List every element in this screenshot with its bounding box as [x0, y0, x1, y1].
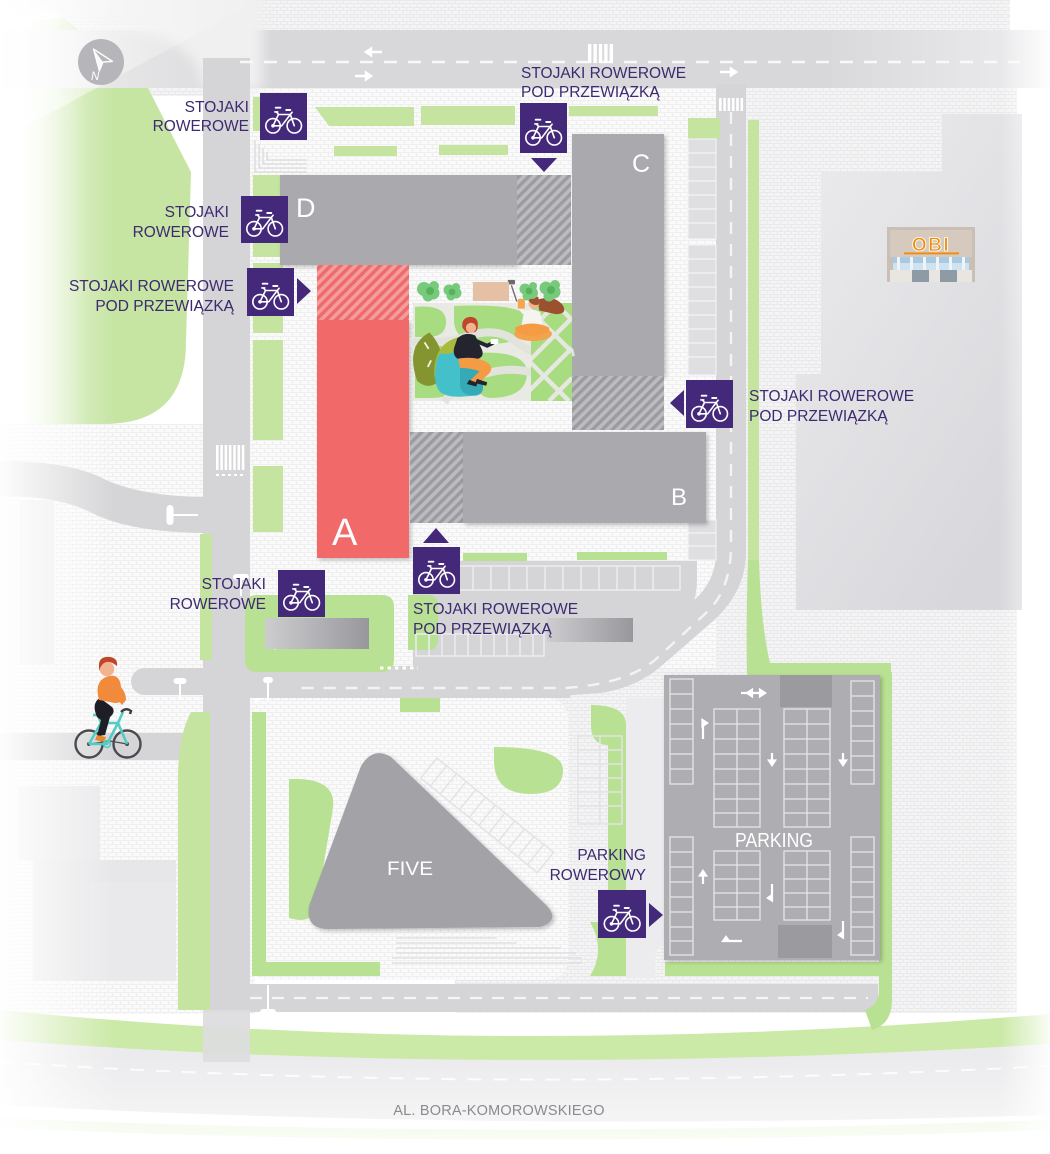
svg-text:STOJAKI ROWEROWE: STOJAKI ROWEROWE — [413, 601, 578, 618]
svg-text:STOJAKI ROWEROWE: STOJAKI ROWEROWE — [69, 278, 234, 295]
svg-text:STOJAKI: STOJAKI — [202, 576, 266, 593]
svg-text:STOJAKI: STOJAKI — [165, 204, 229, 221]
svg-text:ROWEROWE: ROWEROWE — [170, 596, 266, 613]
svg-text:POD PRZEWIĄZKĄ: POD PRZEWIĄZKĄ — [95, 298, 234, 315]
svg-text:ROWEROWY: ROWEROWY — [550, 867, 646, 884]
svg-text:ROWEROWE: ROWEROWE — [133, 224, 229, 241]
svg-text:STOJAKI ROWEROWE: STOJAKI ROWEROWE — [749, 388, 914, 405]
svg-text:POD PRZEWIĄZKĄ: POD PRZEWIĄZKĄ — [749, 408, 888, 425]
svg-text:B: B — [671, 484, 687, 511]
svg-text:POD PRZEWIĄZKĄ: POD PRZEWIĄZKĄ — [413, 621, 552, 638]
svg-text:C: C — [632, 150, 650, 178]
svg-text:FIVE: FIVE — [387, 858, 433, 880]
svg-text:ROWEROWE: ROWEROWE — [153, 118, 249, 135]
svg-text:AL. BORA-KOMOROWSKIEGO: AL. BORA-KOMOROWSKIEGO — [393, 1103, 604, 1119]
svg-text:STOJAKI ROWEROWE: STOJAKI ROWEROWE — [521, 65, 686, 82]
svg-text:PARKING: PARKING — [735, 830, 813, 852]
svg-text:D: D — [296, 193, 316, 223]
svg-text:A: A — [332, 512, 358, 554]
svg-text:POD PRZEWIĄZKĄ: POD PRZEWIĄZKĄ — [521, 84, 660, 101]
svg-text:STOJAKI: STOJAKI — [185, 99, 249, 116]
svg-text:N: N — [91, 71, 100, 83]
svg-text:PARKING: PARKING — [577, 847, 646, 864]
